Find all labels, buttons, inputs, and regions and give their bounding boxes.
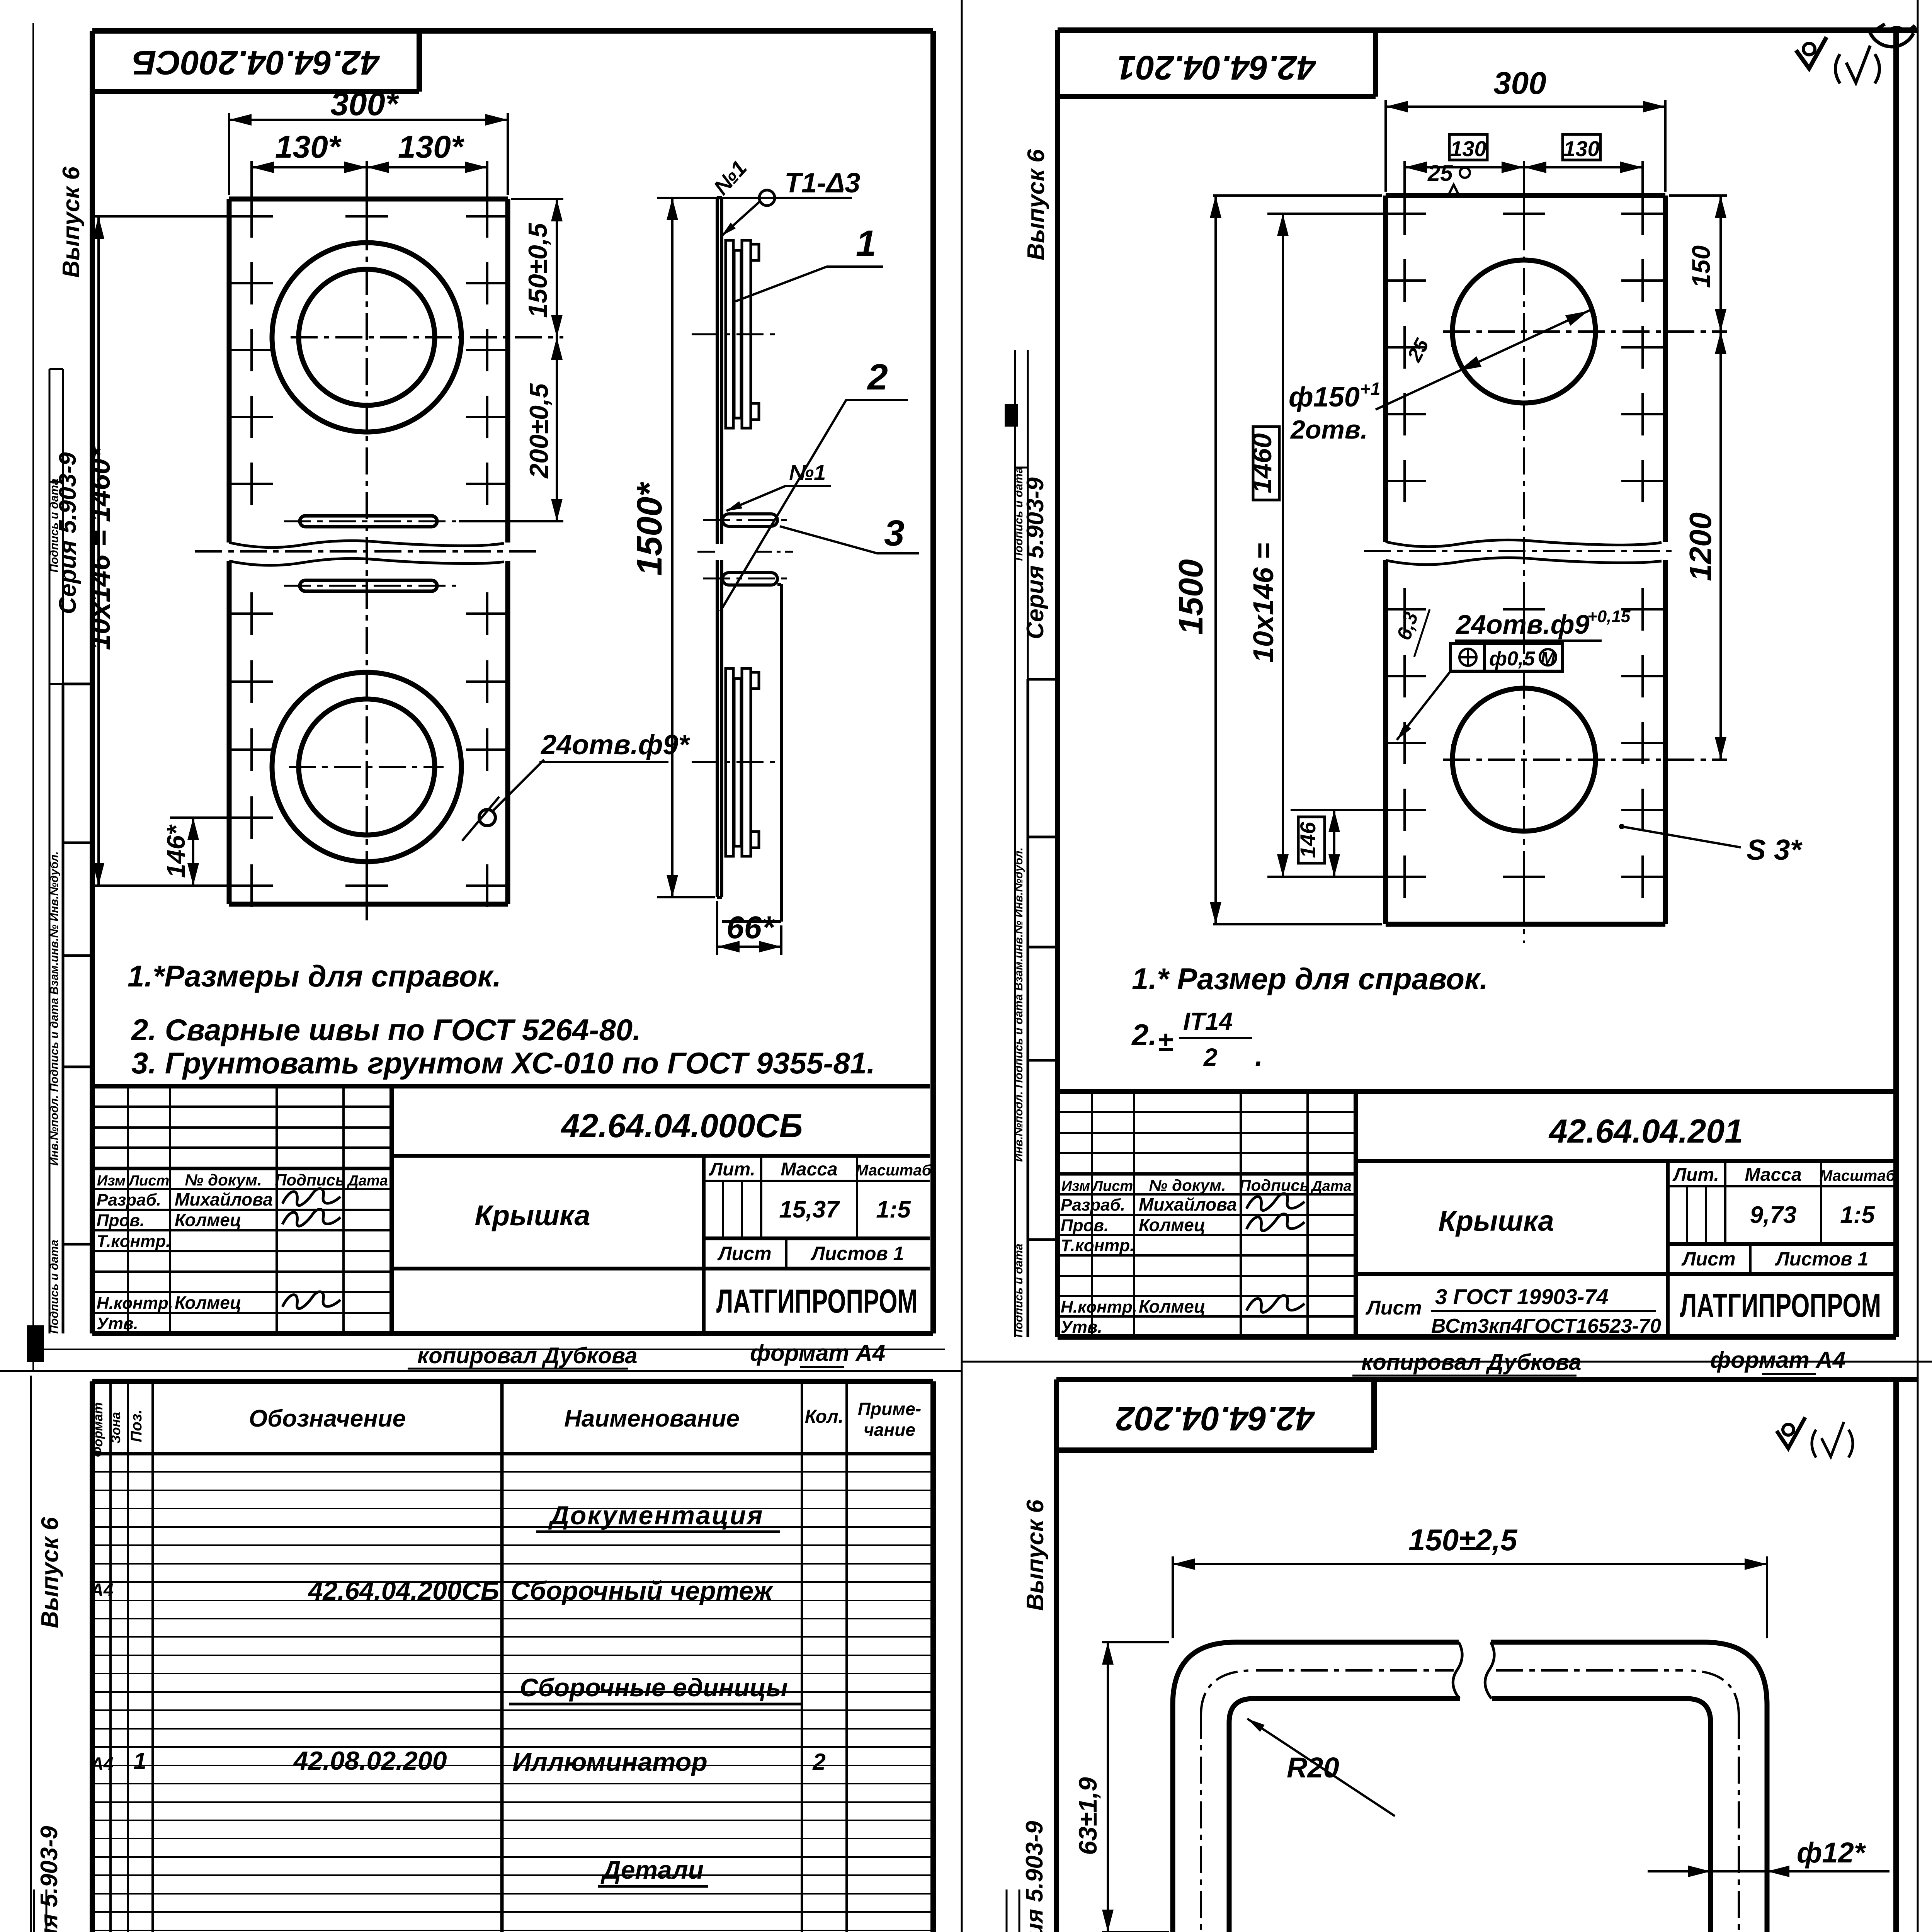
svg-text:3 ГОСТ 19903-74: 3 ГОСТ 19903-74 xyxy=(1435,1284,1609,1309)
svg-text:Обозначение: Обозначение xyxy=(249,1405,406,1432)
svg-text:Подпись: Подпись xyxy=(275,1171,345,1189)
svg-text:300*: 300* xyxy=(330,86,400,122)
svg-text:А4: А4 xyxy=(90,1753,114,1774)
svg-text:№ докум.: № докум. xyxy=(1149,1176,1226,1194)
svg-text:+1: +1 xyxy=(1360,379,1380,399)
svg-text:3: 3 xyxy=(884,513,905,554)
svg-text:Сборочный чертеж: Сборочный чертеж xyxy=(511,1576,774,1605)
svg-text:66*: 66* xyxy=(726,910,776,945)
svg-text:Лист: Лист xyxy=(1681,1248,1735,1270)
svg-text:1:5: 1:5 xyxy=(876,1196,911,1223)
svg-text:Выпуск 6: Выпуск 6 xyxy=(58,167,85,278)
svg-text:Наименование: Наименование xyxy=(564,1405,740,1432)
svg-text:.: . xyxy=(1255,1041,1263,1072)
svg-text:42.08.02.200: 42.08.02.200 xyxy=(293,1746,447,1776)
svg-text:Михайлова: Михайлова xyxy=(175,1189,273,1209)
svg-text:42.64.04.201: 42.64.04.201 xyxy=(1548,1113,1743,1150)
svg-text:42.64.04.200СБ: 42.64.04.200СБ xyxy=(308,1576,499,1605)
svg-text:10х146 = 1460*: 10х146 = 1460* xyxy=(84,446,116,650)
svg-text:ф150: ф150 xyxy=(1289,382,1360,413)
svg-text:Выпуск 6: Выпуск 6 xyxy=(1022,1500,1049,1611)
svg-text:1:5: 1:5 xyxy=(1840,1202,1875,1228)
svg-text:Серия 5.903-9: Серия 5.903-9 xyxy=(54,452,81,614)
svg-text:Колмец: Колмец xyxy=(175,1210,241,1230)
svg-text:42.64.04.000СБ: 42.64.04.000СБ xyxy=(560,1107,803,1145)
svg-text:Пров.: Пров. xyxy=(1061,1216,1109,1235)
svg-text:130: 130 xyxy=(1450,136,1486,161)
svg-text:Колмец: Колмец xyxy=(1139,1296,1206,1316)
svg-text:Масштаб: Масштаб xyxy=(1820,1167,1896,1184)
svg-text:Лист: Лист xyxy=(717,1243,771,1264)
svg-text:IT14: IT14 xyxy=(1183,1007,1233,1035)
svg-text:Лист: Лист xyxy=(128,1173,169,1189)
svg-text:1200: 1200 xyxy=(1683,512,1718,581)
svg-text:Формат: Формат xyxy=(91,1402,105,1457)
svg-text:2.: 2. xyxy=(1131,1018,1157,1052)
svg-text:Дата: Дата xyxy=(347,1173,388,1189)
svg-text:2: 2 xyxy=(867,357,888,398)
svg-text:Подпись: Подпись xyxy=(1239,1176,1309,1194)
svg-text:1: 1 xyxy=(133,1748,146,1774)
svg-text:Масса: Масса xyxy=(781,1159,837,1180)
svg-text:Приме-: Приме- xyxy=(858,1399,921,1419)
svg-text:ЛАТГИПРОПРОМ: ЛАТГИПРОПРОМ xyxy=(716,1282,917,1320)
svg-text:+0,15: +0,15 xyxy=(1587,607,1631,626)
svg-text:копировал Дубкова: копировал Дубкова xyxy=(417,1343,638,1368)
svg-text:Серия 5.903-9: Серия 5.903-9 xyxy=(36,1826,63,1932)
svg-text:Утв.: Утв. xyxy=(1061,1318,1102,1337)
svg-text:Поз.: Поз. xyxy=(128,1410,145,1442)
svg-text:Лит.: Лит. xyxy=(1672,1165,1719,1185)
svg-text:Михайлова: Михайлова xyxy=(1139,1194,1237,1214)
svg-text:Н.контр.: Н.контр. xyxy=(1061,1298,1137,1316)
svg-text:15,37: 15,37 xyxy=(779,1196,840,1223)
svg-text:Подпись и дата: Подпись и дата xyxy=(1012,1243,1025,1337)
svg-text:150±2,5: 150±2,5 xyxy=(1408,1523,1518,1557)
svg-text:42.64.04.202: 42.64.04.202 xyxy=(1116,1400,1315,1438)
svg-text:S 3*: S 3* xyxy=(1747,833,1803,866)
svg-text:Документация: Документация xyxy=(548,1501,764,1530)
svg-text:1500: 1500 xyxy=(1172,559,1210,635)
svg-text:150: 150 xyxy=(1687,245,1715,288)
svg-text:Выпуск 6: Выпуск 6 xyxy=(1023,149,1049,260)
svg-text:Листов 1: Листов 1 xyxy=(811,1243,904,1264)
svg-text:Лит.: Лит. xyxy=(709,1159,755,1180)
svg-text:42.64.04.201: 42.64.04.201 xyxy=(1117,49,1316,87)
svg-text:2. Сварные швы по ГОСТ 5264-8: 2. Сварные швы по ГОСТ 5264-80. xyxy=(131,1013,641,1047)
svg-text:Иллюминатор: Иллюминатор xyxy=(512,1747,707,1777)
svg-text:чание: чание xyxy=(864,1420,915,1440)
svg-text:130*: 130* xyxy=(398,129,465,165)
svg-text:копировал Дубкова: копировал Дубкова xyxy=(1361,1350,1582,1375)
svg-text:Листов 1: Листов 1 xyxy=(1775,1248,1869,1270)
svg-text:1: 1 xyxy=(856,223,876,264)
svg-text:130: 130 xyxy=(1563,136,1599,161)
svg-text:300: 300 xyxy=(1493,66,1546,101)
svg-text:ф0,5: ф0,5 xyxy=(1489,648,1535,670)
svg-text:42.64.04.200СБ: 42.64.04.200СБ xyxy=(132,44,380,82)
svg-text:2отв.: 2отв. xyxy=(1290,415,1368,444)
svg-text:2: 2 xyxy=(812,1749,825,1775)
svg-text:146*: 146* xyxy=(162,824,190,878)
svg-text:Колмец: Колмец xyxy=(175,1293,241,1313)
svg-text:А4: А4 xyxy=(90,1580,114,1600)
svg-text:Крышка: Крышка xyxy=(474,1199,590,1231)
svg-text:R20: R20 xyxy=(1287,1752,1339,1784)
svg-text:№1: №1 xyxy=(789,460,826,485)
svg-text:ЛАТГИПРОПРОМ: ЛАТГИПРОПРОМ xyxy=(1680,1287,1881,1324)
svg-text:150±0,5: 150±0,5 xyxy=(523,223,553,318)
svg-text:24отв.ф9*: 24отв.ф9* xyxy=(540,730,690,760)
svg-text:130*: 130* xyxy=(275,129,342,165)
svg-text:Утв.: Утв. xyxy=(97,1314,138,1333)
svg-text:Разраб.: Разраб. xyxy=(97,1190,161,1209)
svg-text:Кол.: Кол. xyxy=(805,1406,844,1427)
svg-text:формат А4: формат А4 xyxy=(1710,1347,1845,1373)
svg-text:Разраб.: Разраб. xyxy=(1061,1196,1125,1214)
svg-text:№ докум.: № докум. xyxy=(185,1171,262,1189)
svg-text:Сборочные единицы: Сборочные единицы xyxy=(520,1673,788,1702)
svg-text:200±0,5: 200±0,5 xyxy=(524,383,554,479)
svg-text:Лист: Лист xyxy=(1092,1178,1133,1194)
svg-text:Изм: Изм xyxy=(1061,1178,1090,1194)
svg-text:Масштаб: Масштаб xyxy=(855,1162,932,1179)
svg-text:24отв.ф9: 24отв.ф9 xyxy=(1455,609,1590,639)
svg-text:Крышка: Крышка xyxy=(1438,1205,1554,1237)
svg-text:ф12*: ф12* xyxy=(1797,1837,1866,1869)
svg-text:25: 25 xyxy=(1427,161,1453,186)
svg-text:Масса: Масса xyxy=(1745,1165,1801,1185)
svg-text:Зона: Зона xyxy=(109,1412,123,1444)
svg-text:Серия 5.903-9: Серия 5.903-9 xyxy=(1022,477,1049,639)
svg-text:Т.контр.: Т.контр. xyxy=(97,1232,170,1251)
svg-text:Подпись и дата: Подпись и дата xyxy=(48,1240,61,1333)
svg-text:ВСт3кп4ГОСТ16523-70: ВСт3кп4ГОСТ16523-70 xyxy=(1431,1315,1661,1337)
svg-text:±: ± xyxy=(1158,1026,1173,1057)
svg-text:3. Грунтовать грунтом ХС-010: 3. Грунтовать грунтом ХС-010 по ГОСТ 935… xyxy=(131,1046,875,1080)
svg-text:1460: 1460 xyxy=(1247,433,1277,493)
svg-text:Серия 5.903-9: Серия 5.903-9 xyxy=(1021,1821,1048,1932)
svg-text:Н.контр.: Н.контр. xyxy=(97,1294,173,1313)
svg-text:9,73: 9,73 xyxy=(1750,1202,1797,1228)
svg-text:1500*: 1500* xyxy=(630,481,669,576)
svg-text:Лист: Лист xyxy=(1365,1297,1422,1319)
svg-text:Колмец: Колмец xyxy=(1139,1215,1206,1235)
svg-text:1.*Размеры для справок.: 1.*Размеры для справок. xyxy=(128,959,501,993)
svg-text:Выпуск 6: Выпуск 6 xyxy=(37,1517,63,1628)
svg-text:Пров.: Пров. xyxy=(97,1211,145,1230)
svg-text:146: 146 xyxy=(1296,821,1320,858)
svg-text:Инв.№подл. Подпись и дата Вз: Инв.№подл. Подпись и дата Взам.инв.№ Инв… xyxy=(48,851,61,1166)
svg-text:Детали: Детали xyxy=(600,1855,704,1884)
svg-text:формат А4: формат А4 xyxy=(750,1340,885,1366)
svg-text:1.* Размер для справок.: 1.* Размер для справок. xyxy=(1132,962,1488,996)
svg-text:Т1-Δ3: Т1-Δ3 xyxy=(784,168,860,199)
svg-text:Т.контр.: Т.контр. xyxy=(1061,1236,1134,1255)
svg-text:Инв.№подл. Подпись и дата Вз: Инв.№подл. Подпись и дата Взам.инв.№ Инв… xyxy=(1012,847,1025,1162)
svg-text:Изм: Изм xyxy=(97,1173,126,1189)
svg-text:Дата: Дата xyxy=(1310,1178,1352,1194)
svg-text:10х146 =: 10х146 = xyxy=(1247,543,1279,663)
svg-text:63±1,9: 63±1,9 xyxy=(1073,1777,1102,1855)
svg-text:2: 2 xyxy=(1203,1043,1218,1071)
svg-text:М: М xyxy=(1541,648,1556,668)
